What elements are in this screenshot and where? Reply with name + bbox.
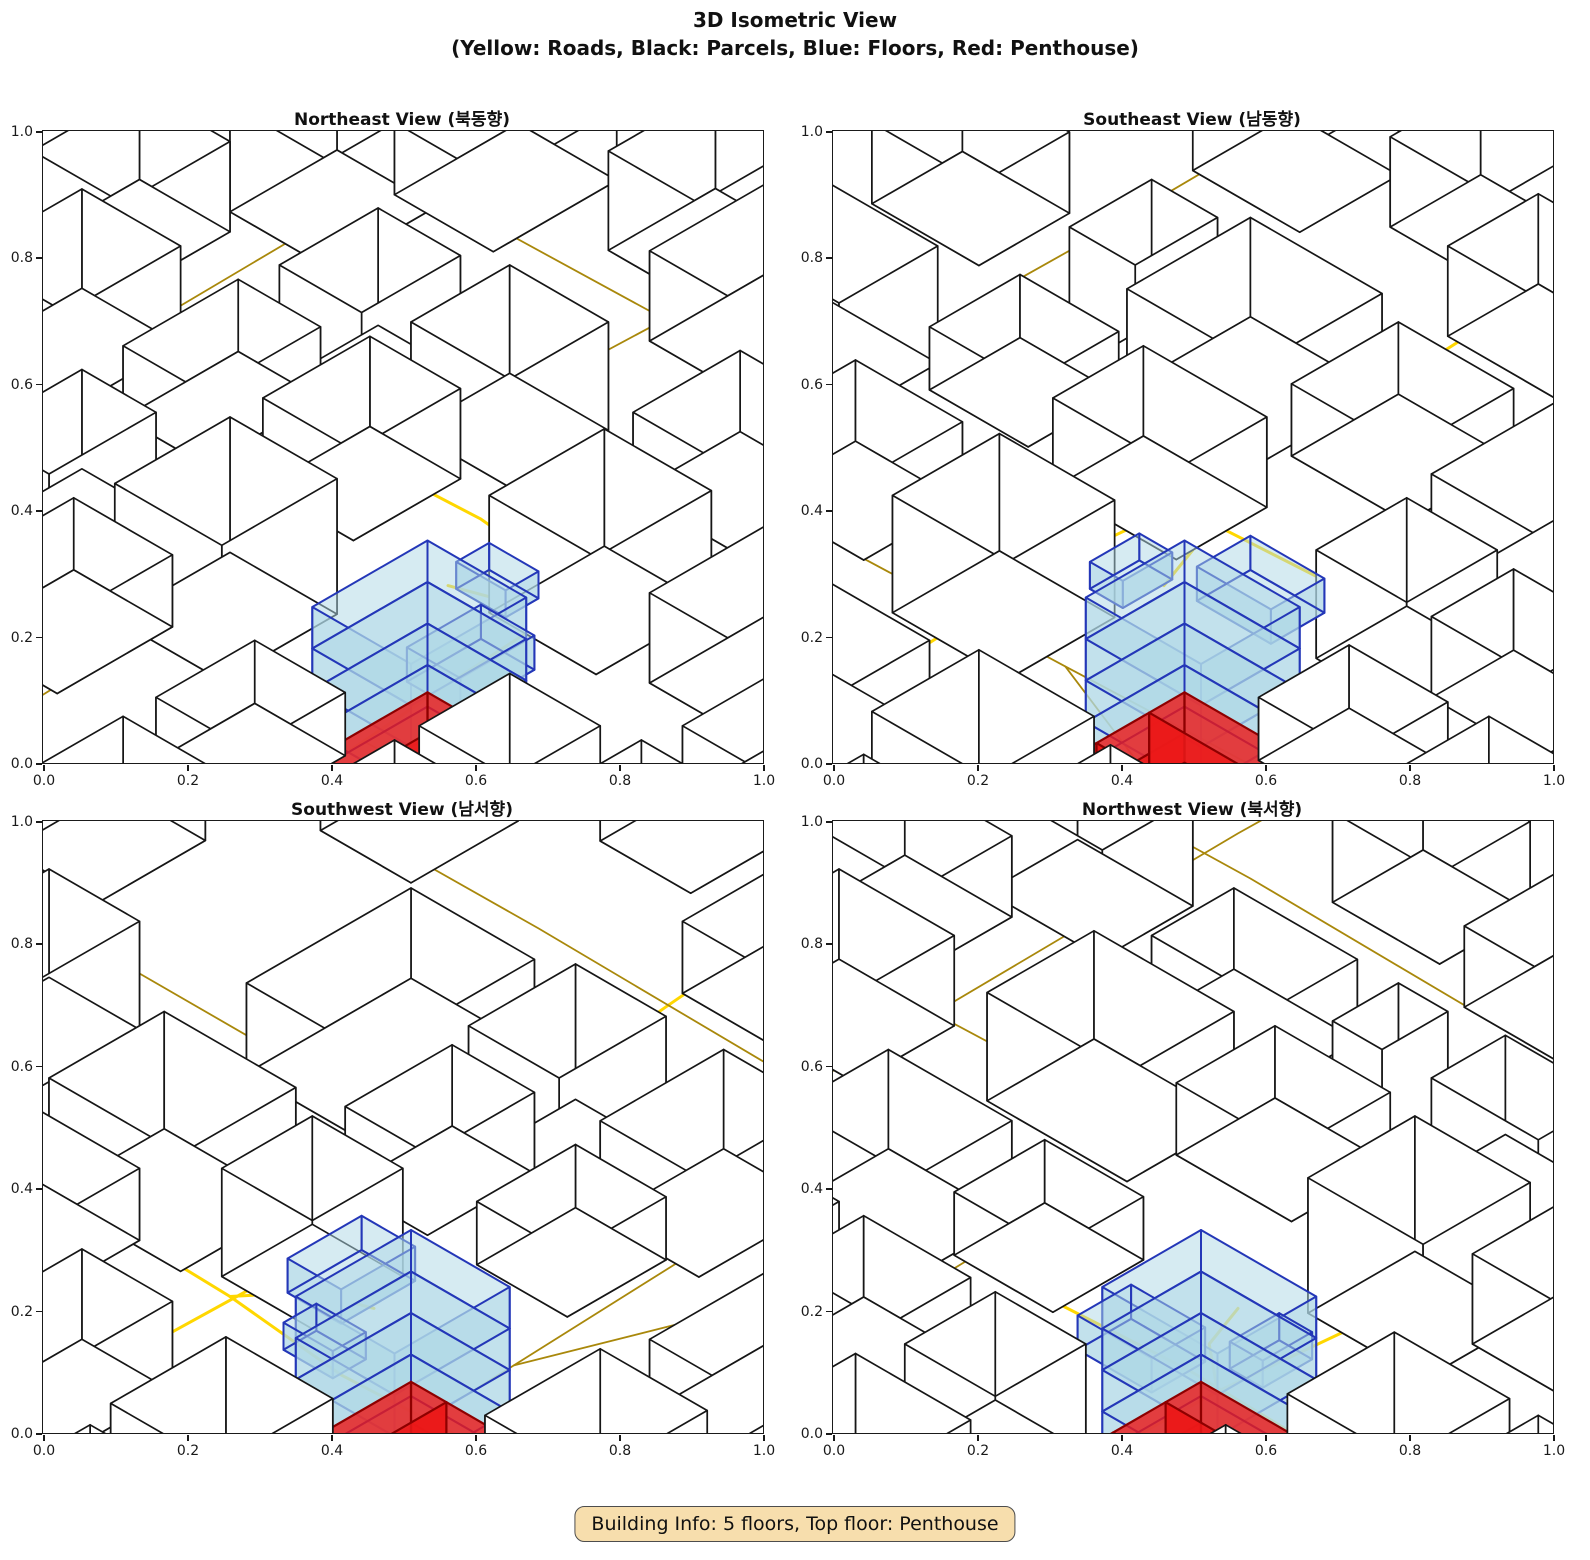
x-axis-tick: [1121, 1435, 1123, 1441]
y-axis-tick: [826, 1066, 832, 1068]
figure-title-line2: (Yellow: Roads, Black: Parcels, Blue: Fl…: [0, 34, 1590, 62]
x-axis-tick-label: 0.2: [967, 1443, 989, 1459]
y-axis-tick: [826, 384, 832, 386]
y-axis-tick: [826, 1433, 832, 1435]
y-axis-tick: [36, 384, 42, 386]
x-axis-tick: [833, 765, 835, 771]
isometric-scene: [43, 131, 763, 763]
x-axis-tick-label: 0.8: [1399, 773, 1421, 789]
x-axis-tick: [187, 1435, 189, 1441]
y-axis-tick-label: 0.6: [801, 377, 823, 393]
x-axis-tick: [763, 765, 765, 771]
x-axis-tick-label: 0.0: [33, 773, 55, 789]
x-axis-tick-label: 0.8: [609, 773, 631, 789]
x-axis-tick: [43, 765, 45, 771]
x-axis-tick-label: 0.2: [177, 773, 199, 789]
y-axis-tick: [826, 510, 832, 512]
x-axis-tick-label: 0.2: [967, 773, 989, 789]
x-axis-tick-label: 0.6: [1255, 773, 1277, 789]
x-axis-tick: [977, 765, 979, 771]
y-axis-tick-label: 1.0: [11, 814, 33, 830]
axes-area-northwest: [832, 820, 1554, 1434]
y-axis-tick: [36, 131, 42, 133]
subplot-southwest: Southwest View (남서향) 0.00.00.20.20.40.40…: [42, 820, 762, 1432]
x-axis-tick: [475, 1435, 477, 1441]
building-info-box: Building Info: 5 floors, Top floor: Pent…: [574, 1506, 1015, 1542]
y-axis-tick-label: 0.6: [801, 1059, 823, 1075]
y-axis-tick-label: 0.4: [801, 503, 823, 519]
y-axis-tick: [826, 637, 832, 639]
y-axis-tick-label: 0.8: [801, 250, 823, 266]
parcel-box: [833, 1354, 856, 1434]
x-axis-tick-label: 0.6: [465, 773, 487, 789]
y-axis-tick-label: 1.0: [11, 124, 33, 140]
x-axis-tick: [1553, 765, 1555, 771]
x-axis-tick-label: 1.0: [1543, 773, 1565, 789]
x-axis-tick: [43, 1435, 45, 1441]
x-axis-tick: [1409, 765, 1411, 771]
y-axis-tick-label: 1.0: [801, 814, 823, 830]
subplot-title-northwest: Northwest View (북서향): [832, 795, 1552, 820]
y-axis-tick-label: 0.2: [801, 630, 823, 646]
y-axis-tick-label: 0.0: [801, 1426, 823, 1442]
subplot-northwest: Northwest View (북서향) 0.00.00.20.20.40.40…: [832, 820, 1552, 1432]
y-axis-tick: [826, 943, 832, 945]
x-axis-tick-label: 0.6: [465, 1443, 487, 1459]
x-axis-tick: [331, 765, 333, 771]
y-axis-tick-label: 0.4: [801, 1181, 823, 1197]
x-axis-tick-label: 0.4: [1111, 773, 1133, 789]
y-axis-tick: [826, 1188, 832, 1190]
x-axis-tick-label: 0.8: [1399, 1443, 1421, 1459]
y-axis-tick-label: 1.0: [801, 124, 823, 140]
y-axis-tick-label: 0.2: [801, 1304, 823, 1320]
figure-title: 3D Isometric View (Yellow: Roads, Black:…: [0, 6, 1590, 62]
y-axis-tick: [36, 257, 42, 259]
subplot-northeast: Northeast View (북동향) 0.00.00.20.20.40.40…: [42, 130, 762, 762]
x-axis-tick-label: 0.4: [321, 773, 343, 789]
subplot-title-southeast: Southeast View (남동향): [832, 105, 1552, 130]
x-axis-tick-label: 1.0: [753, 773, 775, 789]
y-axis-tick: [826, 257, 832, 259]
parcel-box: [1538, 1415, 1553, 1433]
subplot-southeast: Southeast View (남동향) 0.00.00.20.20.40.40…: [832, 130, 1552, 762]
subplot-title-northeast: Northeast View (북동향): [42, 105, 762, 130]
x-axis-tick-label: 0.0: [823, 773, 845, 789]
isometric-scene: [43, 821, 763, 1433]
x-axis-tick: [977, 1435, 979, 1441]
axes-area-southwest: [42, 820, 764, 1434]
y-axis-tick-label: 0.6: [11, 1059, 33, 1075]
y-axis-tick-label: 0.4: [11, 503, 33, 519]
y-axis-tick-label: 0.8: [801, 936, 823, 952]
y-axis-tick: [36, 1066, 42, 1068]
y-axis-tick-label: 0.2: [11, 1304, 33, 1320]
y-axis-tick-label: 0.8: [11, 936, 33, 952]
x-axis-tick: [1409, 1435, 1411, 1441]
axes-area-southeast: [832, 130, 1554, 764]
y-axis-tick: [826, 763, 832, 765]
x-axis-tick-label: 0.8: [609, 1443, 631, 1459]
axes-area-northeast: [42, 130, 764, 764]
y-axis-tick-label: 0.0: [11, 756, 33, 772]
x-axis-tick: [187, 765, 189, 771]
x-axis-tick: [619, 765, 621, 771]
x-axis-tick-label: 0.2: [177, 1443, 199, 1459]
x-axis-tick: [1121, 765, 1123, 771]
y-axis-tick: [36, 637, 42, 639]
y-axis-tick: [826, 1311, 832, 1313]
x-axis-tick: [331, 1435, 333, 1441]
parcel-box: [600, 821, 763, 893]
x-axis-tick: [1265, 1435, 1267, 1441]
y-axis-tick: [36, 1311, 42, 1313]
x-axis-tick-label: 0.0: [823, 1443, 845, 1459]
y-axis-tick-label: 0.8: [11, 250, 33, 266]
y-axis-tick: [36, 1188, 42, 1190]
parcel-box: [321, 821, 519, 883]
y-axis-tick: [826, 821, 832, 823]
y-axis-tick-label: 0.6: [11, 377, 33, 393]
parcel-box: [43, 716, 123, 763]
x-axis-tick: [619, 1435, 621, 1441]
x-axis-tick-label: 0.4: [321, 1443, 343, 1459]
x-axis-tick-label: 0.6: [1255, 1443, 1277, 1459]
y-axis-tick: [36, 1433, 42, 1435]
x-axis-tick-label: 0.0: [33, 1443, 55, 1459]
x-axis-tick: [833, 1435, 835, 1441]
x-axis-tick-label: 0.4: [1111, 1443, 1133, 1459]
x-axis-tick: [763, 1435, 765, 1441]
y-axis-tick: [36, 943, 42, 945]
figure-title-line1: 3D Isometric View: [0, 6, 1590, 34]
x-axis-tick: [475, 765, 477, 771]
isometric-scene: [833, 821, 1553, 1433]
y-axis-tick-label: 0.2: [11, 630, 33, 646]
x-axis-tick: [1265, 765, 1267, 771]
y-axis-tick-label: 0.4: [11, 1181, 33, 1197]
x-axis-tick: [1553, 1435, 1555, 1441]
subplot-title-southwest: Southwest View (남서향): [42, 795, 762, 820]
y-axis-tick: [36, 510, 42, 512]
y-axis-tick-label: 0.0: [801, 756, 823, 772]
y-axis-tick: [36, 763, 42, 765]
y-axis-tick-label: 0.0: [11, 1426, 33, 1442]
x-axis-tick-label: 1.0: [753, 1443, 775, 1459]
x-axis-tick-label: 1.0: [1543, 1443, 1565, 1459]
y-axis-tick: [36, 821, 42, 823]
y-axis-tick: [826, 131, 832, 133]
isometric-scene: [833, 131, 1553, 763]
